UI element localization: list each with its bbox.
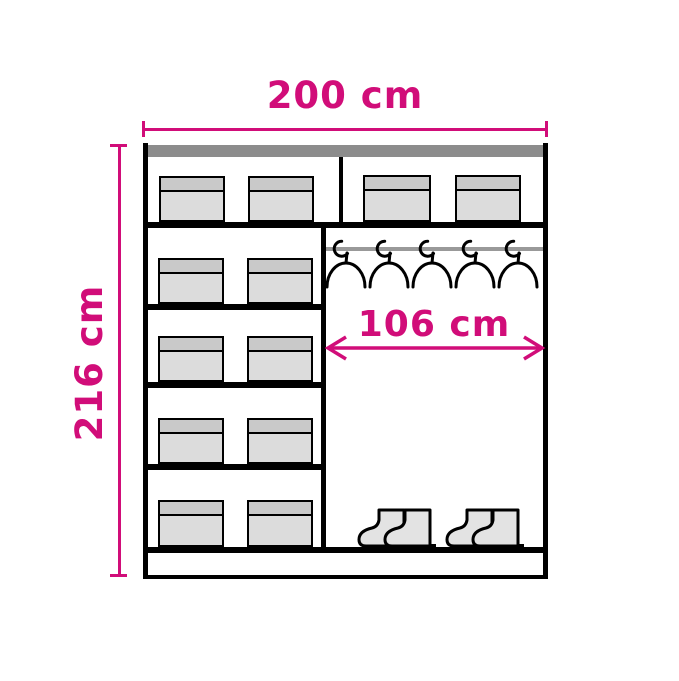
boot-pair xyxy=(447,510,524,547)
box-lid xyxy=(161,178,223,192)
box-lid xyxy=(160,260,222,274)
hanger xyxy=(456,241,494,287)
storage-box xyxy=(158,418,224,464)
shelf-line-4 xyxy=(148,464,321,470)
storage-box xyxy=(455,175,521,222)
box-lid xyxy=(457,177,519,191)
boot-pair xyxy=(359,510,436,547)
height-dim-top-tick xyxy=(110,144,127,147)
box-lid xyxy=(249,338,311,352)
box-lid xyxy=(249,502,311,516)
hanger xyxy=(499,241,537,287)
box-lid xyxy=(249,260,311,274)
boots-svg xyxy=(350,508,535,550)
height-dimension-label: 216 cm xyxy=(70,263,110,463)
storage-box xyxy=(247,418,313,464)
height-dim-bottom-tick xyxy=(110,574,127,577)
storage-box xyxy=(248,176,314,222)
plinth xyxy=(148,553,543,575)
hanger xyxy=(370,241,408,287)
top-shelf xyxy=(148,222,543,228)
box-lid xyxy=(249,420,311,434)
shelf-line-2 xyxy=(148,304,321,310)
hanger xyxy=(327,241,365,287)
diagram-canvas: 200 cm 216 cm xyxy=(0,0,679,681)
storage-box xyxy=(158,336,224,382)
box-lid xyxy=(160,338,222,352)
storage-box xyxy=(247,336,313,382)
hangers-svg xyxy=(321,230,548,295)
storage-box xyxy=(159,176,225,222)
bottom-edge xyxy=(143,575,548,579)
box-lid xyxy=(160,420,222,434)
storage-box xyxy=(363,175,431,222)
storage-box xyxy=(158,258,224,304)
box-lid xyxy=(250,178,312,192)
width-dimension-label: 200 cm xyxy=(245,76,445,116)
center-divider-top xyxy=(339,157,343,222)
interior-width-arrow xyxy=(321,300,548,370)
top-panel xyxy=(148,145,543,157)
storage-box xyxy=(247,258,313,304)
box-lid xyxy=(365,177,429,191)
hanger xyxy=(413,241,451,287)
box-lid xyxy=(160,502,222,516)
storage-box xyxy=(158,500,224,547)
width-dim-right-tick xyxy=(545,121,548,137)
left-wall xyxy=(143,143,148,579)
width-dim-left-tick xyxy=(142,121,145,137)
storage-box xyxy=(247,500,313,547)
shelf-line-3 xyxy=(148,382,321,388)
